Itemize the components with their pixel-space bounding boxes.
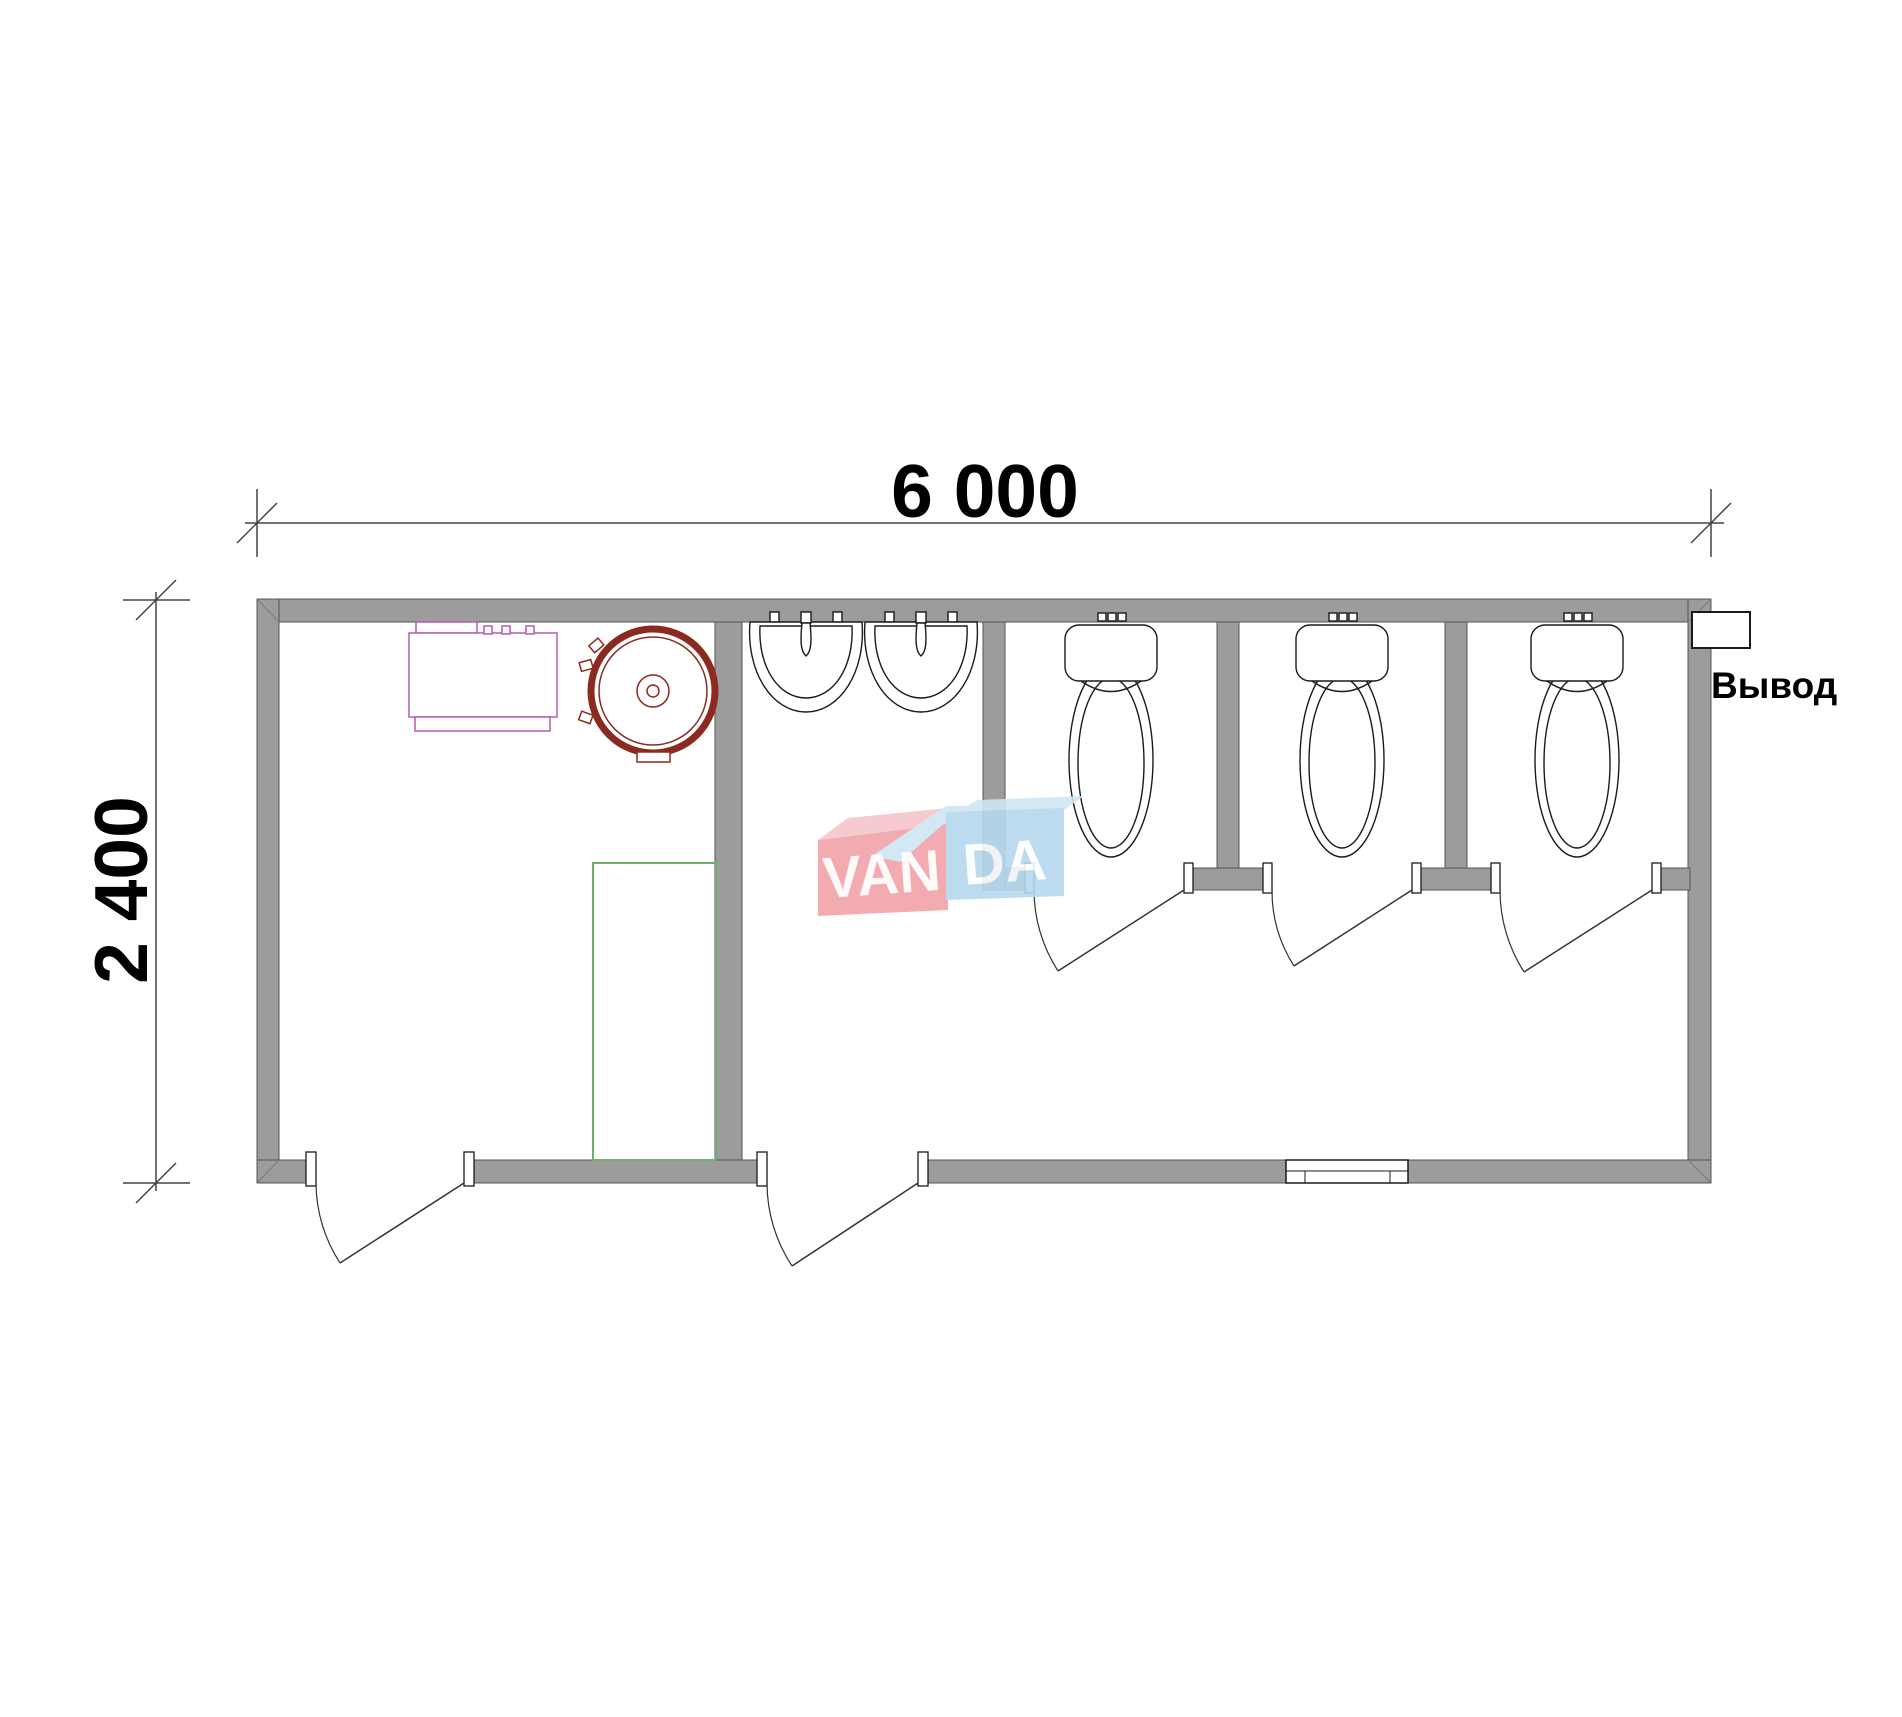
stall-door-3 xyxy=(1500,890,1652,972)
jamb-entrance2-right xyxy=(918,1152,928,1186)
vanda-watermark: VAN DA xyxy=(818,796,1084,916)
dimension-width-value: 6 000 xyxy=(891,449,1079,533)
stall-door-3-leaf xyxy=(1524,890,1652,972)
shower-tray xyxy=(593,863,716,1160)
wall-left xyxy=(257,599,279,1183)
stall-door-3-arc xyxy=(1500,890,1524,972)
stall-front-stub-right xyxy=(1661,868,1690,890)
watermark-text-left: VAN xyxy=(820,838,942,911)
jamb-stall2-right xyxy=(1412,863,1421,893)
boiler-unit xyxy=(409,622,557,731)
utility-outlet: Вывод xyxy=(1692,612,1837,706)
outlet-label: Вывод xyxy=(1711,665,1837,706)
jamb-stall1-right xyxy=(1184,863,1193,893)
toilet-1 xyxy=(1065,613,1157,857)
jamb-stall3-right xyxy=(1652,863,1661,893)
wall-room1-washroom xyxy=(715,622,742,1160)
entrance-door-2-leaf xyxy=(792,1183,918,1266)
wall-right xyxy=(1688,599,1711,1183)
entrance-door-1-arc xyxy=(316,1183,340,1263)
wall-bottom-segment-2 xyxy=(464,1160,767,1183)
jamb-stall3-left xyxy=(1491,863,1500,893)
washbasin-2 xyxy=(865,612,978,712)
stall-partition-1 xyxy=(1217,622,1239,868)
dimension-height-value: 2 400 xyxy=(79,796,163,984)
water-tank xyxy=(579,629,715,762)
stall-door-1-arc xyxy=(1034,890,1058,971)
jamb-entrance1-left xyxy=(306,1152,316,1186)
jamb-entrance1-right xyxy=(464,1152,474,1186)
entrance-door-2 xyxy=(767,1183,918,1266)
stall-front-bar-2 xyxy=(1421,868,1491,890)
entrance-door-1 xyxy=(316,1183,464,1263)
toilet-2 xyxy=(1296,613,1388,857)
stall-front-bar-1 xyxy=(1193,868,1263,890)
dimension-height: 2 400 xyxy=(79,580,190,1203)
washbasin-1 xyxy=(750,612,863,712)
entrance-door-2-arc xyxy=(767,1183,792,1266)
window xyxy=(1286,1160,1408,1183)
stall-door-2 xyxy=(1272,890,1412,966)
dimension-width: 6 000 xyxy=(237,449,1731,557)
stall-door-2-leaf xyxy=(1294,890,1412,966)
stall-door-1 xyxy=(1034,890,1184,971)
outlet-box xyxy=(1692,612,1750,648)
watermark-text-right: DA xyxy=(961,827,1049,898)
wall-bottom-segment-4 xyxy=(1408,1160,1711,1183)
jamb-entrance2-left xyxy=(757,1152,767,1186)
floor-plan-canvas: 6 000 2 400 xyxy=(0,0,1902,1717)
jamb-stall2-left xyxy=(1263,863,1272,893)
stall-door-1-leaf xyxy=(1058,890,1184,971)
stall-partition-2 xyxy=(1445,622,1467,868)
stall-door-2-arc xyxy=(1272,890,1294,966)
toilet-3 xyxy=(1531,613,1623,857)
door-jambs xyxy=(306,863,1661,1186)
wall-bottom-segment-3 xyxy=(918,1160,1286,1183)
entrance-door-1-leaf xyxy=(340,1183,464,1263)
wall-top xyxy=(257,599,1711,622)
